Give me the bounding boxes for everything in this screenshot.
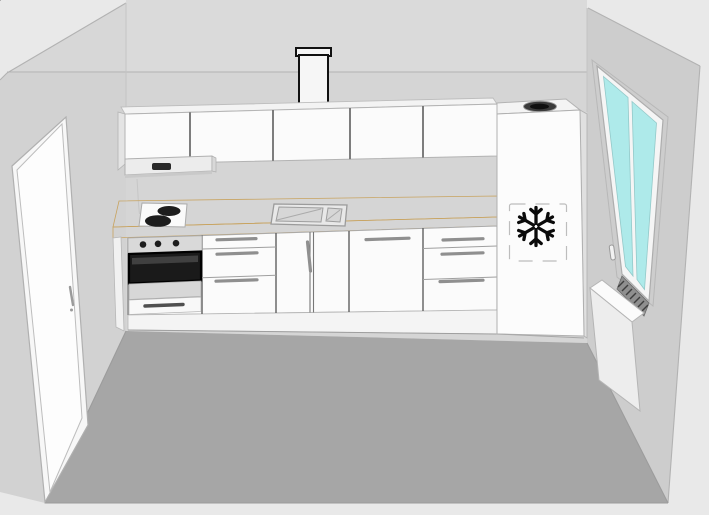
oven-knob-icon xyxy=(140,241,147,248)
back-wall-upper-band xyxy=(126,0,587,72)
freezer[interactable] xyxy=(497,99,587,338)
hood-control-panel xyxy=(152,163,171,170)
kitchen-planner-3d-view xyxy=(0,0,709,515)
wall-cabinet-left-side xyxy=(118,112,125,170)
burner-icon xyxy=(145,215,171,227)
vent-duct[interactable] xyxy=(296,48,331,111)
oven-knob-icon xyxy=(155,241,162,248)
oven-knob-icon xyxy=(173,240,180,247)
oven-drawer-handle xyxy=(145,305,183,307)
floor xyxy=(45,331,668,503)
base-cabinets[interactable] xyxy=(113,226,497,334)
wall-cabinet-doors xyxy=(125,104,497,164)
round-vent-center xyxy=(530,104,549,110)
burner-icon xyxy=(158,206,181,216)
door-keyhole-icon xyxy=(70,309,73,312)
hood-side xyxy=(212,156,216,172)
cooktop[interactable] xyxy=(139,203,187,227)
oven-lower-strip xyxy=(129,281,201,300)
sink[interactable] xyxy=(271,204,347,226)
oven[interactable] xyxy=(128,236,202,315)
